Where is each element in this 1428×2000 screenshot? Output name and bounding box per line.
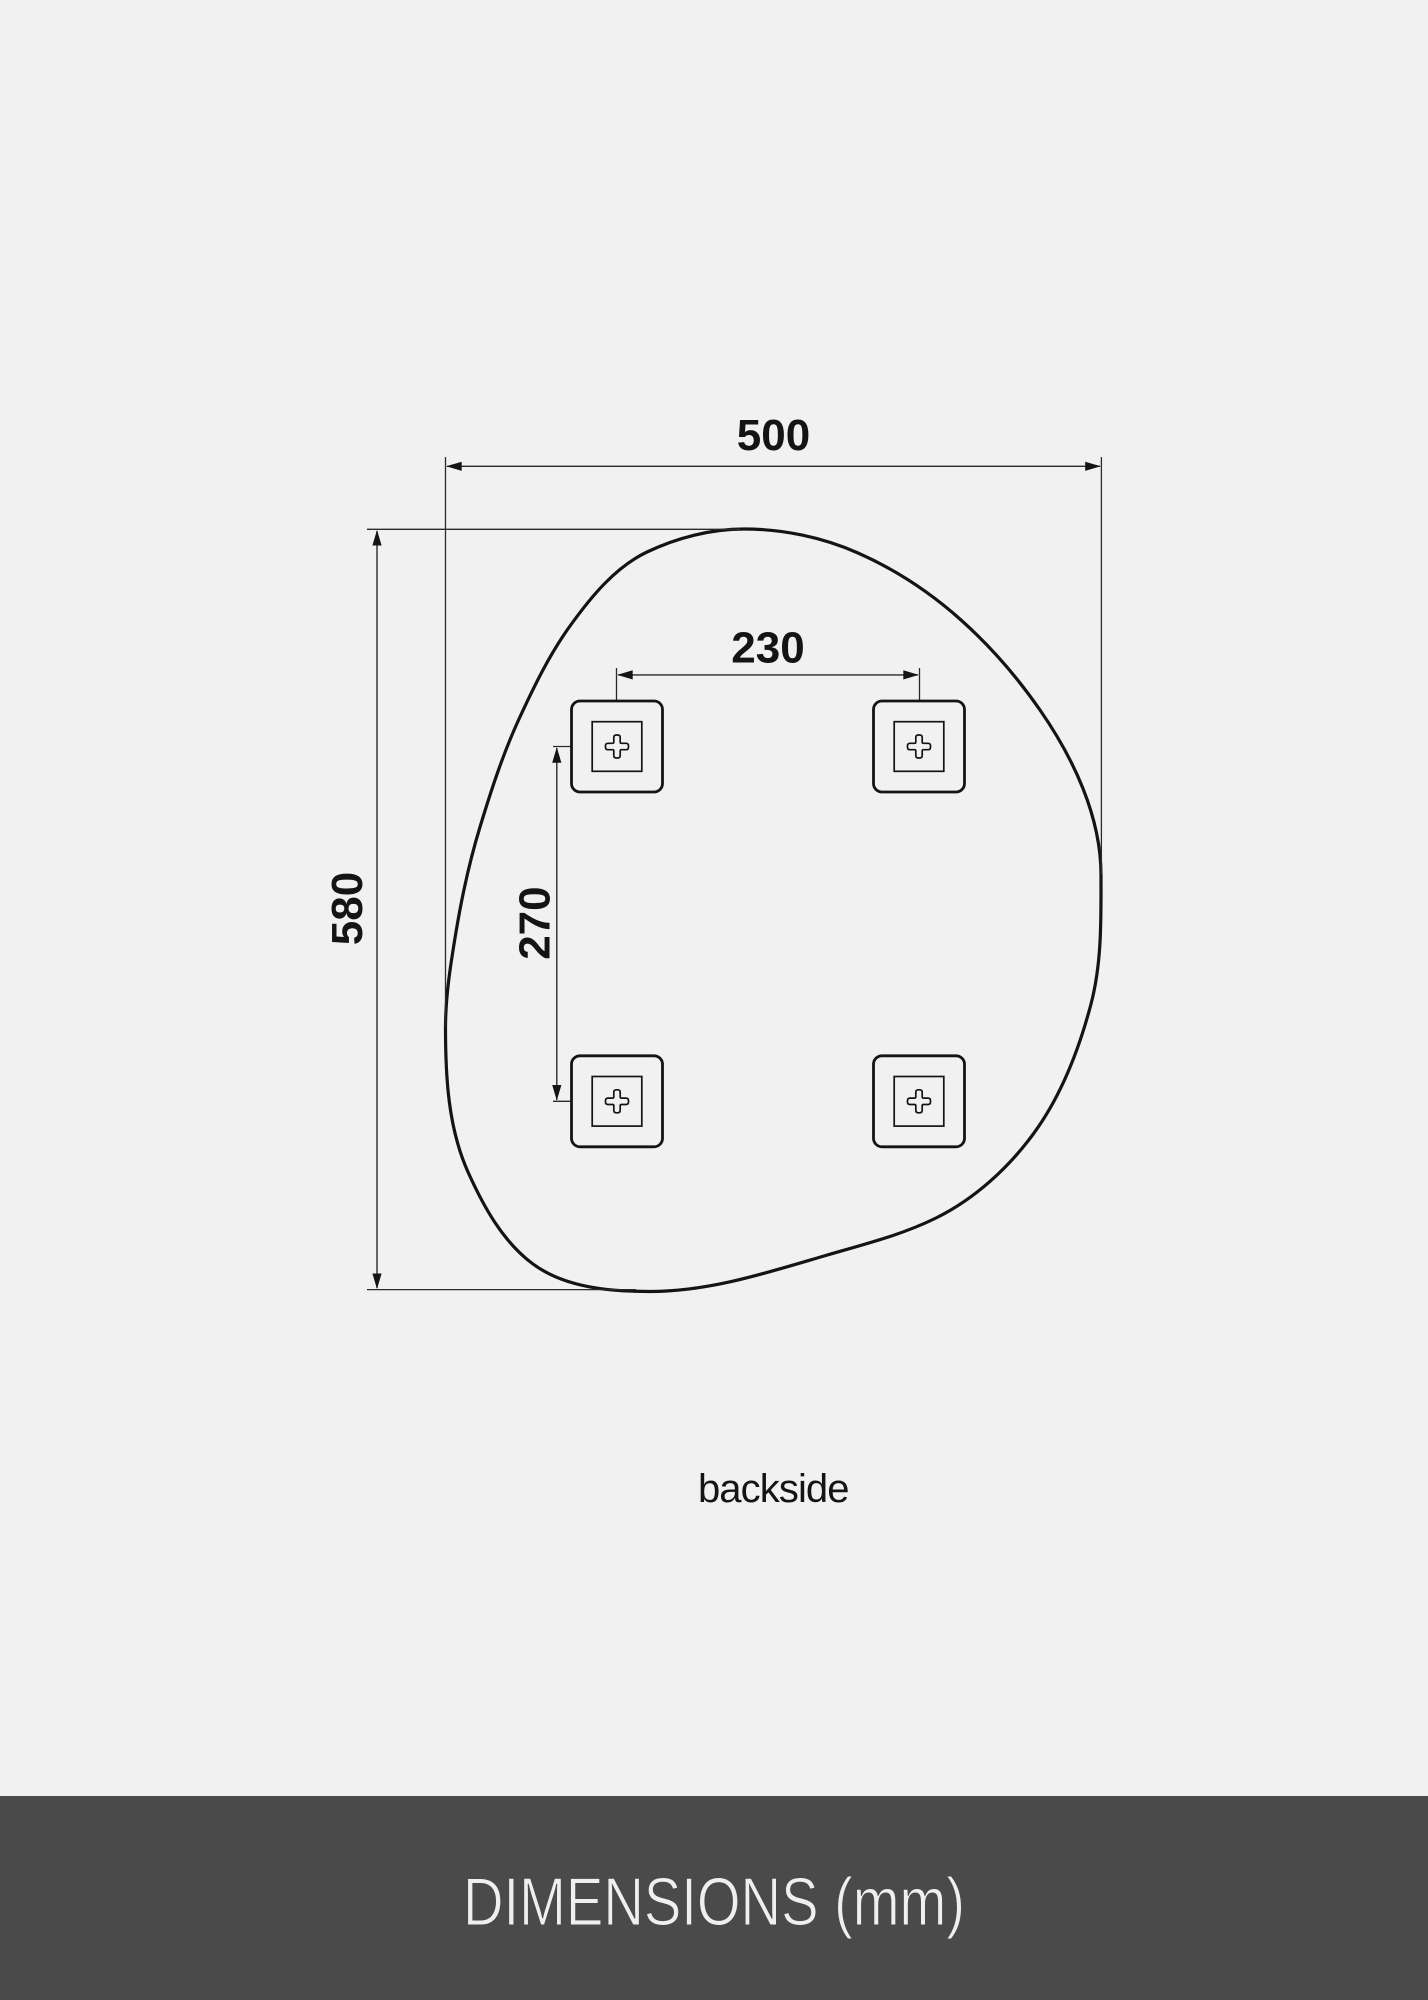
svg-text:580: 580 (323, 872, 372, 945)
svg-text:500: 500 (737, 411, 810, 460)
svg-text:DIMENSIONS (mm): DIMENSIONS (mm) (463, 1864, 965, 1940)
svg-text:270: 270 (511, 886, 560, 959)
svg-text:backside: backside (698, 1467, 849, 1511)
svg-text:230: 230 (731, 624, 804, 673)
